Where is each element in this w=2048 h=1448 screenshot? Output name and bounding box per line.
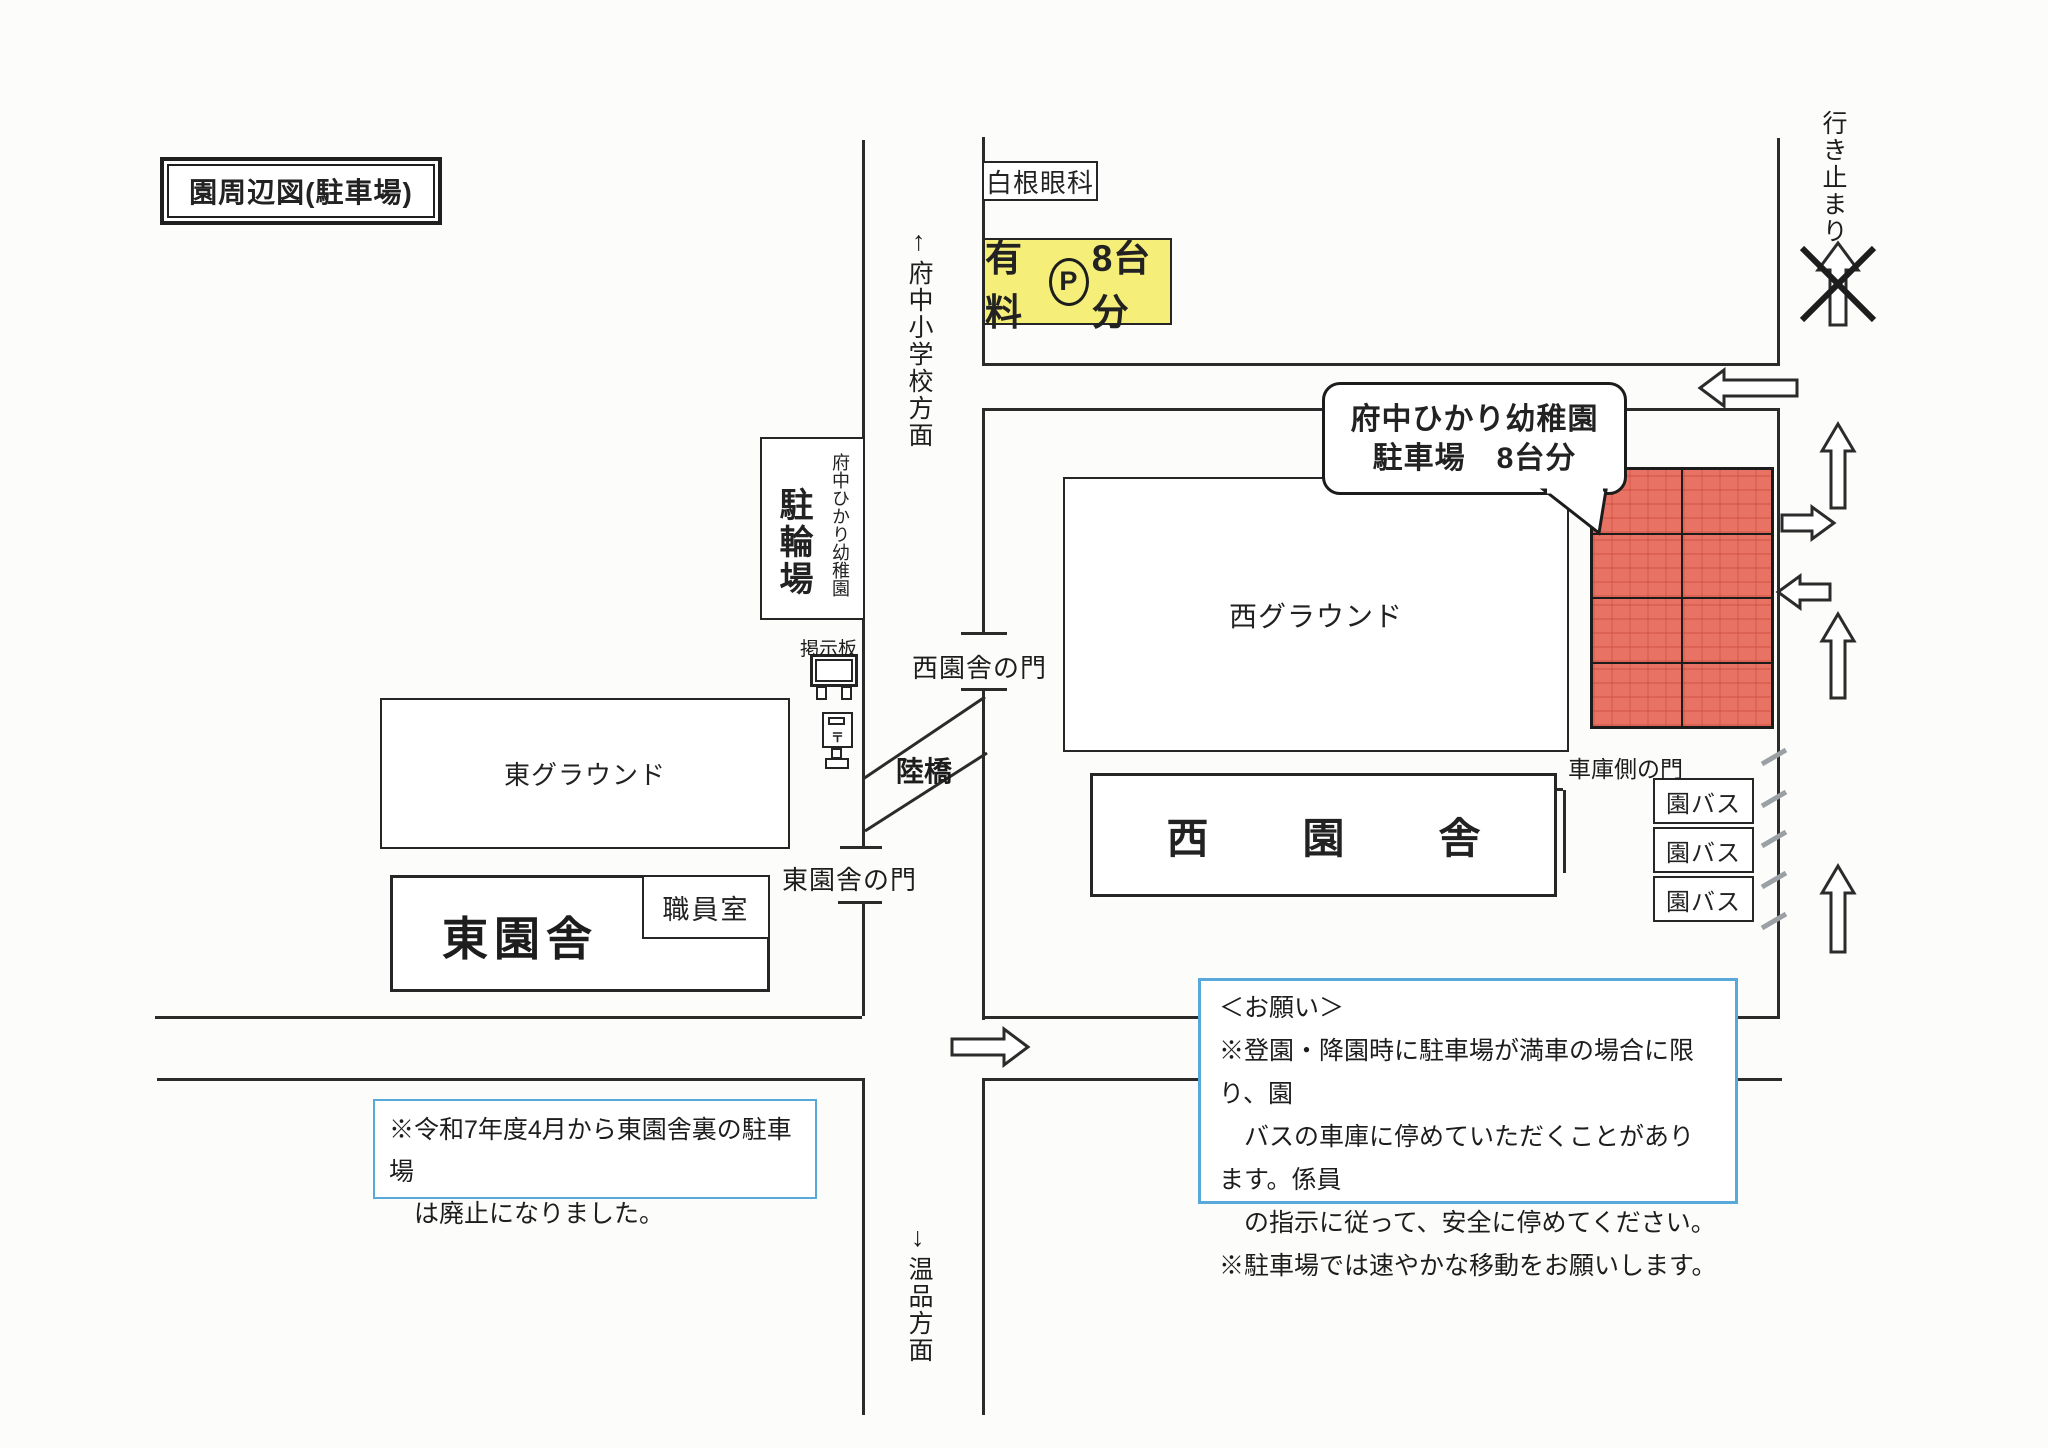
- west-gate-tick-bottom: [961, 688, 1007, 691]
- request-note-box: ＜お願い＞ ※登園・降園時に駐車場が満車の場合に限り、園 バスの車庫に停めていた…: [1198, 978, 1738, 1204]
- east-building-label: 東園舎: [400, 903, 640, 969]
- garage-gate-label: 車庫側の門: [1568, 750, 1683, 784]
- building-east-ground: 東グラウンド: [380, 698, 790, 849]
- east-gate-tick-bottom: [838, 901, 882, 904]
- callout-line2: 駐車場 8台分: [1373, 439, 1577, 478]
- post-slot: [828, 717, 845, 725]
- map-title: 園周辺図(駐車場): [167, 164, 435, 218]
- east-gate-tick-top: [840, 846, 882, 849]
- up-arrow-icon: [1822, 614, 1854, 698]
- road-ns-left-line-lower: [862, 1078, 865, 1415]
- parking-space: [1593, 664, 1681, 727]
- request-title: ＜お願い＞: [1219, 987, 1717, 1030]
- bulletin-board-label: 掲示板: [800, 634, 857, 661]
- east-ground-label: 東グラウンド: [504, 755, 666, 792]
- bus-garage-slot: 園バス: [1653, 827, 1754, 873]
- right-arrow-icon: [952, 1029, 1028, 1065]
- post-box-icon: 〒: [822, 712, 853, 748]
- map-title-box: 園周辺図(駐車場): [160, 157, 442, 225]
- road-ns-right-line-mid: [982, 689, 985, 1020]
- eye-clinic-label: 白根眼科: [986, 163, 1094, 200]
- road-deadend-line-upper: [1777, 138, 1780, 363]
- bus-garage-slot: 園バス: [1653, 778, 1754, 824]
- postal-mark: 〒: [831, 727, 844, 746]
- dead-end-arrow-icon: [1802, 243, 1874, 325]
- building-eye-clinic: 白根眼科: [982, 161, 1098, 201]
- kindergarten-parking-grid: [1590, 467, 1774, 729]
- north-direction-arrow: ↑: [912, 226, 926, 257]
- bus-label: 園バス: [1666, 882, 1741, 917]
- road-ns-left-line-mid: [862, 902, 865, 1016]
- up-arrow-icon: [1822, 866, 1854, 952]
- road-deadend-line-lower: [1777, 408, 1780, 1017]
- south-direction-arrow: ↓: [911, 1222, 925, 1253]
- paid-parking-suffix: 8台分: [1092, 228, 1170, 336]
- parking-space: [1683, 599, 1771, 662]
- road-ew-bottom-lower-left: [157, 1078, 862, 1081]
- request-line4: ※駐車場では速やかな移動をお願いします。: [1219, 1245, 1717, 1288]
- bulletin-board-leg: [816, 686, 827, 700]
- fence-hatch-marks: [1762, 750, 1786, 928]
- paid-parking-box: 有料 P 8台分: [983, 238, 1172, 325]
- parking-space: [1593, 599, 1681, 662]
- left-arrow-icon: [1700, 370, 1797, 406]
- parking-space: [1683, 470, 1771, 533]
- west-gate-tick-top: [961, 632, 1007, 635]
- bus-label: 園バス: [1666, 833, 1741, 868]
- bicycle-parking-label: 駐輪場: [776, 487, 810, 607]
- kindergarten-parking-callout: 府中ひかり幼稚園 駐車場 8台分: [1322, 382, 1627, 495]
- request-line3: の指示に従って、安全に停めてください。: [1219, 1202, 1717, 1245]
- abolished-parking-note: ※令和7年度4月から東園舎裏の駐車場 は廃止になりました。: [373, 1099, 817, 1199]
- abolished-note-line1: ※令和7年度4月から東園舎裏の駐車場: [389, 1109, 801, 1193]
- road-ns-right-line-upper: [982, 408, 985, 633]
- bus-label: 園バス: [1666, 784, 1741, 819]
- post-box-base: [825, 758, 849, 769]
- request-line1: ※登園・降園時に駐車場が満車の場合に限り、園: [1219, 1030, 1717, 1116]
- west-gate-label: 西園舎の門: [912, 648, 1047, 685]
- bicycle-parking-kindergarten-label: 府中ひかり幼稚園: [831, 453, 849, 605]
- west-ground-label: 西グラウンド: [1229, 595, 1403, 635]
- bus-garage-slot: 園バス: [1653, 876, 1754, 922]
- abolished-note-line2: は廃止になりました。: [389, 1193, 801, 1235]
- building-west-ground: 西グラウンド: [1063, 477, 1569, 752]
- road-ew-top-upper-line: [982, 363, 1780, 366]
- garage-boundary-line: [1563, 790, 1566, 873]
- building-west-building: 西 園 舎: [1090, 773, 1557, 897]
- bridge-label: 陸橋: [896, 750, 952, 790]
- parking-space: [1683, 535, 1771, 598]
- up-arrow-icon: [1822, 424, 1854, 508]
- left-arrow-icon: [1778, 576, 1830, 608]
- south-direction-label: 温品方面: [906, 1256, 931, 1361]
- north-direction-label: 府中小学校方面: [906, 260, 931, 440]
- staff-room-label: 職員室: [663, 888, 750, 927]
- bicycle-parking-box: 府中ひかり幼稚園 駐輪場: [760, 437, 865, 620]
- road-ns-right-line-lower: [982, 1078, 985, 1415]
- parking-space: [1683, 664, 1771, 727]
- circled-p-icon: P: [1049, 258, 1089, 306]
- paid-parking-prefix: 有料: [985, 228, 1046, 336]
- east-gate-label: 東園舎の門: [782, 860, 917, 897]
- parking-space: [1593, 535, 1681, 598]
- map-stage: 園周辺図(駐車場) 白根眼科 有料 P 8台分 府中ひかり幼稚園 駐輪場 東グラ…: [0, 0, 2048, 1448]
- road-ew-bottom-upper-left: [155, 1016, 862, 1019]
- callout-line1: 府中ひかり幼稚園: [1351, 400, 1599, 439]
- building-staff-room: 職員室: [642, 875, 770, 939]
- request-line2: バスの車庫に停めていただくことがあります。係員: [1219, 1116, 1717, 1202]
- right-arrow-icon: [1782, 507, 1834, 539]
- bulletin-board-leg: [841, 686, 852, 700]
- dead-end-label: 行き止まり: [1820, 110, 1845, 235]
- west-building-label: 西 園 舎: [1140, 805, 1506, 866]
